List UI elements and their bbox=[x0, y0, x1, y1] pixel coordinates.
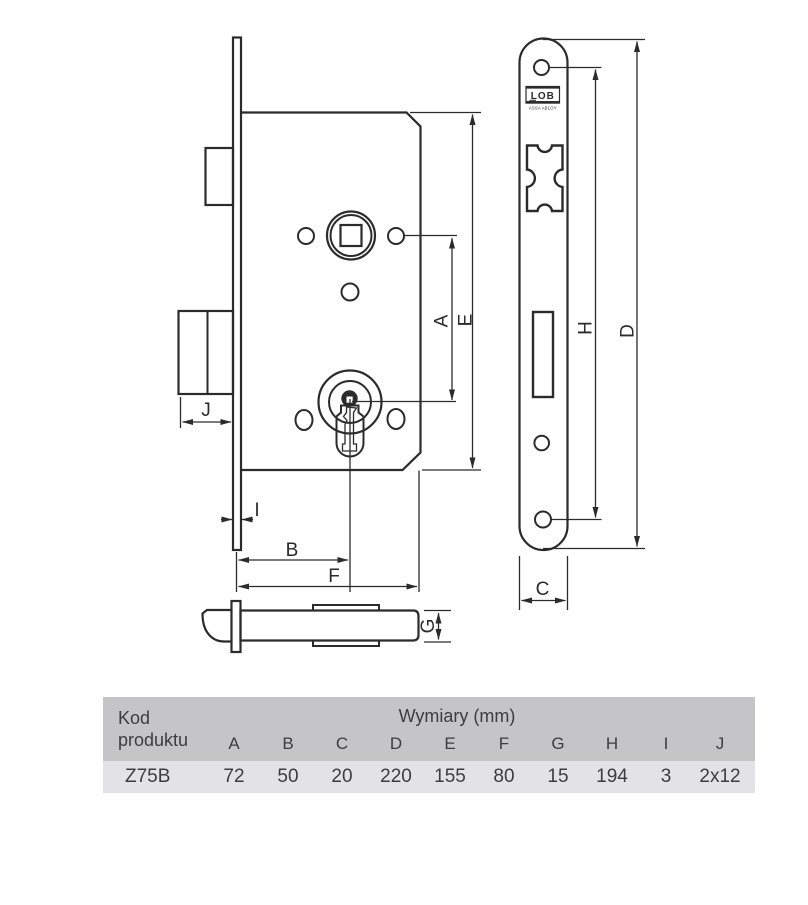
column-header-g: G bbox=[531, 727, 585, 761]
lock-side-view bbox=[179, 38, 458, 593]
fixing-hole-left bbox=[298, 228, 314, 244]
fixing-hole-right bbox=[388, 228, 404, 244]
value-e: 155 bbox=[423, 761, 477, 793]
dead-bolt bbox=[179, 311, 234, 394]
dim-label-h: H bbox=[576, 321, 597, 335]
latch-spring-tab-bottom bbox=[313, 641, 379, 647]
dim-label-f: F bbox=[328, 566, 340, 587]
spindle-hub bbox=[327, 212, 375, 260]
latch-spring-tab-top bbox=[313, 605, 379, 611]
faceplate-outline bbox=[520, 39, 568, 551]
column-header-a: A bbox=[207, 727, 261, 761]
column-header-b: B bbox=[261, 727, 315, 761]
value-j: 2x12 bbox=[693, 761, 747, 793]
value-d: 220 bbox=[369, 761, 423, 793]
dimension-f: F bbox=[239, 471, 420, 593]
faceplate-strip bbox=[233, 38, 241, 551]
value-g: 15 bbox=[531, 761, 585, 793]
dimensions-header: Wymiary (mm) bbox=[207, 697, 747, 727]
dim-label-e: E bbox=[456, 314, 477, 327]
latch-bolt bbox=[206, 148, 234, 205]
lock-technical-drawing-page: LOB ASSA ABLOY bbox=[0, 0, 808, 905]
product-code-header: Kod produktu bbox=[103, 697, 207, 761]
dim-label-j: J bbox=[201, 400, 211, 421]
dimensions-table: Kod produktu Wymiary (mm) A B C D E F G … bbox=[103, 697, 755, 793]
center-hole bbox=[534, 436, 549, 451]
column-header-j: J bbox=[693, 727, 747, 761]
column-header-f: F bbox=[477, 727, 531, 761]
dim-label-b: B bbox=[286, 540, 299, 561]
column-header-e: E bbox=[423, 727, 477, 761]
value-h: 194 bbox=[585, 761, 639, 793]
lock-case-outline bbox=[241, 113, 421, 471]
dimensions-header-group: Wymiary (mm) A B C D E F G H I J bbox=[207, 697, 747, 761]
dim-label-i: I bbox=[254, 500, 259, 521]
latch-bolt-detail-view bbox=[203, 601, 419, 652]
dim-label-g: G bbox=[418, 619, 439, 634]
value-c: 20 bbox=[315, 761, 369, 793]
brand-logo: LOB ASSA ABLOY bbox=[526, 87, 561, 111]
logo-subbrand-text: ASSA ABLOY bbox=[529, 106, 557, 111]
fixing-hole-center bbox=[342, 284, 359, 301]
table-header: Kod produktu Wymiary (mm) A B C D E F G … bbox=[103, 697, 755, 761]
dimension-c: C bbox=[520, 556, 568, 610]
screw-hole-top bbox=[534, 60, 549, 75]
latch-plate-section bbox=[232, 601, 241, 652]
dim-label-a: A bbox=[432, 314, 453, 327]
value-f: 80 bbox=[477, 761, 531, 793]
dimension-d: D bbox=[543, 40, 645, 549]
column-header-d: D bbox=[369, 727, 423, 761]
value-b: 50 bbox=[261, 761, 315, 793]
dimension-j: J bbox=[181, 397, 232, 428]
column-headers: A B C D E F G H I J bbox=[207, 727, 747, 761]
column-header-i: I bbox=[639, 727, 693, 761]
drawing-area: LOB ASSA ABLOY bbox=[0, 0, 808, 685]
screw-post-right bbox=[388, 409, 405, 429]
table-row: Z75B 72 50 20 220 155 80 15 194 3 2x12 bbox=[103, 761, 755, 793]
column-header-c: C bbox=[315, 727, 369, 761]
faceplate-front-view: LOB ASSA ABLOY bbox=[520, 39, 568, 551]
deadbolt-cutout bbox=[533, 312, 553, 397]
dim-label-d: D bbox=[618, 324, 639, 338]
screw-hole-bottom bbox=[535, 512, 551, 528]
screw-post-left bbox=[296, 410, 313, 430]
value-a: 72 bbox=[207, 761, 261, 793]
dimension-g: G bbox=[418, 611, 451, 643]
product-code-value: Z75B bbox=[103, 761, 207, 793]
dim-label-c: C bbox=[536, 579, 550, 600]
dimensions: A E J I bbox=[181, 40, 646, 643]
latch-head bbox=[203, 610, 232, 642]
value-i: 3 bbox=[639, 761, 693, 793]
dimension-a: A bbox=[432, 238, 453, 400]
column-header-h: H bbox=[585, 727, 639, 761]
latch-cutout bbox=[527, 146, 563, 212]
latch-body bbox=[241, 611, 419, 641]
dimension-h: H bbox=[549, 68, 602, 520]
